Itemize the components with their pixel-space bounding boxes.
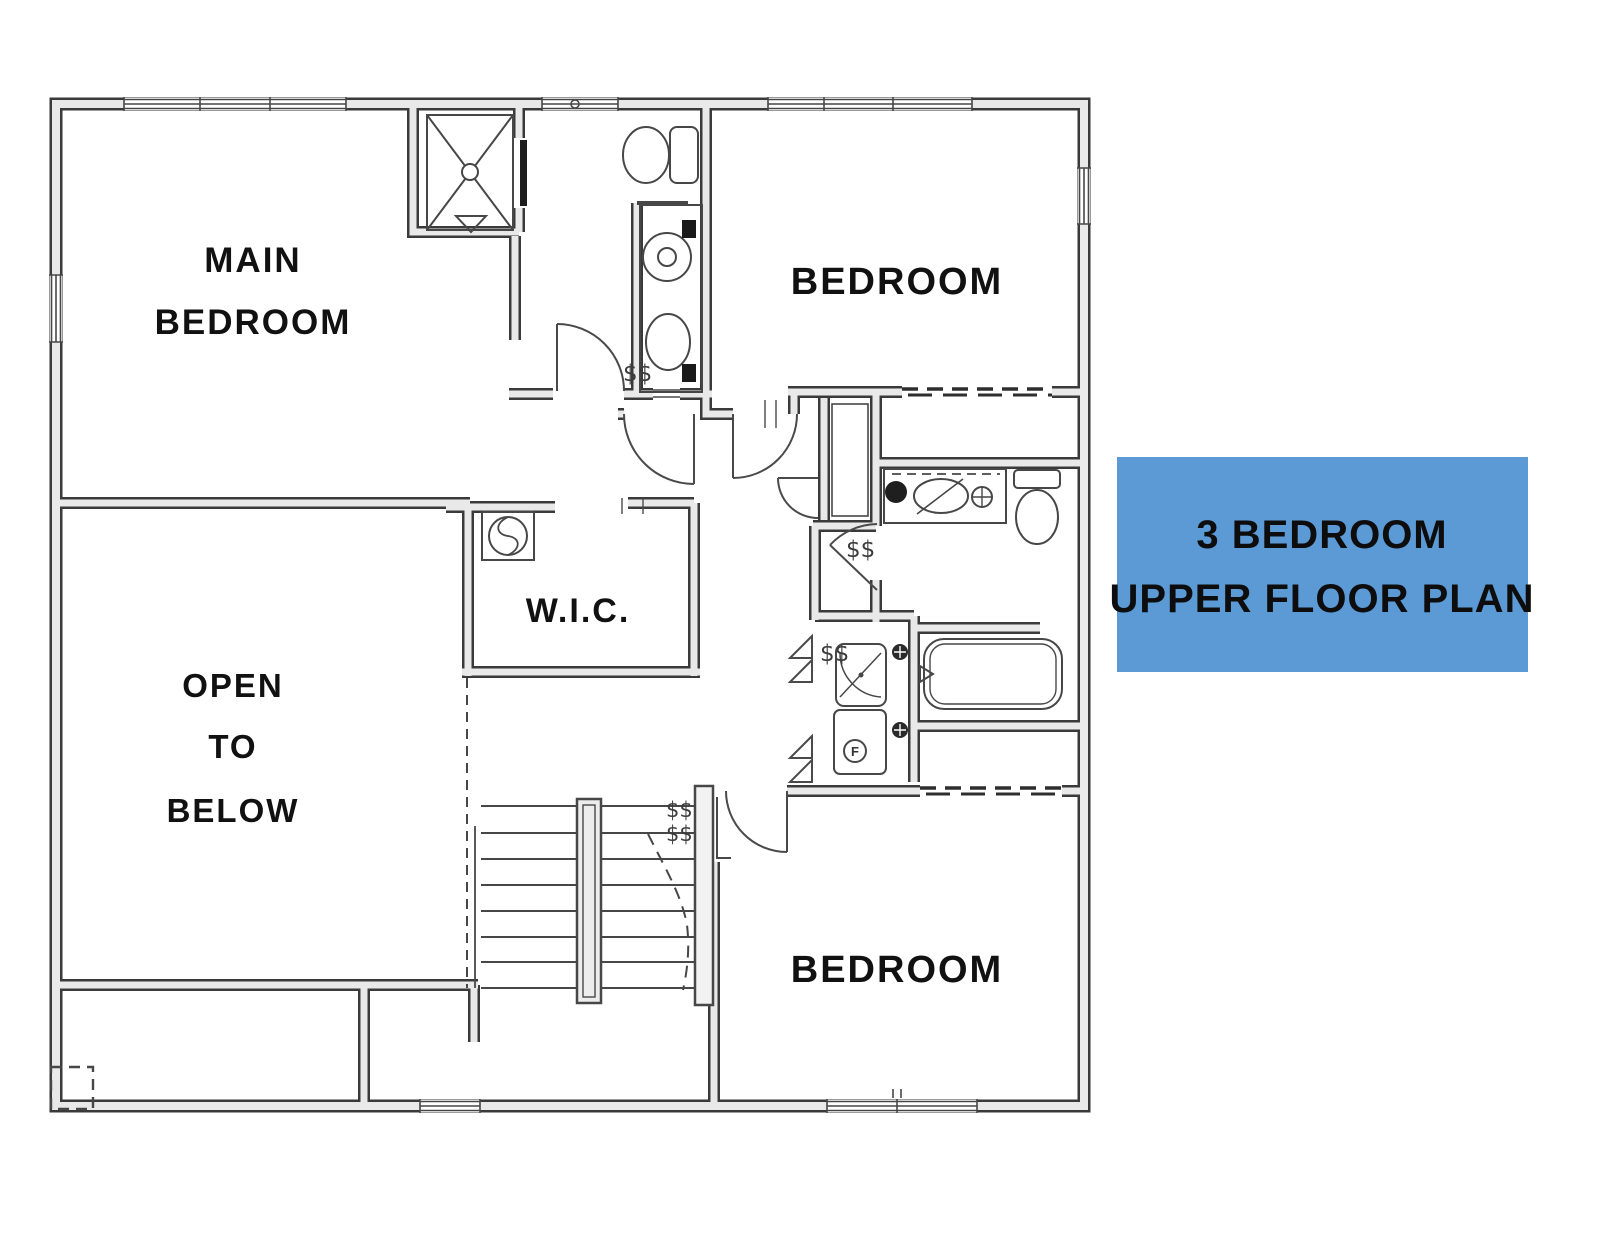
floor-plan-page: F $$ $$ $$ $$ $$ MAIN BEDROOM BEDROOM W.…: [0, 0, 1600, 1236]
main-bedroom-label-line1: MAIN: [204, 241, 301, 280]
doors: [520, 140, 1062, 852]
door-ensuite-vanity-sill: [653, 389, 680, 398]
closet-rod-lower: [920, 788, 1062, 794]
title-badge-background: [1117, 457, 1528, 672]
stair-railing-wall: [695, 786, 713, 1005]
laundry-valves: [892, 644, 908, 738]
faucet-icon: [682, 220, 696, 238]
main-bedroom-label-line2: BEDROOM: [155, 303, 352, 342]
bedroom-upper-label: BEDROOM: [791, 261, 1003, 303]
door-vestibule: [733, 400, 797, 478]
window-main-bedroom-left: [49, 275, 63, 342]
window-landing-bottom: [420, 1099, 480, 1113]
shower-stall: [427, 115, 513, 232]
open-to-below-label-line3: BELOW: [167, 792, 300, 829]
bathroom-vanity: [884, 469, 1006, 523]
dryer-label: F: [851, 744, 859, 759]
bathtub: [920, 639, 1062, 709]
faucet-icon: [682, 364, 696, 382]
door-main-bedroom: [557, 324, 624, 391]
window-bedroom-lower-bottom: [827, 1089, 977, 1113]
open-to-below-label-line1: OPEN: [182, 667, 284, 704]
dryer: F: [834, 710, 886, 774]
window-hall-top: [542, 97, 618, 111]
bathroom-toilet: [1014, 470, 1060, 544]
title-line2: UPPER FLOOR PLAN: [1110, 577, 1535, 621]
wic-fan-symbol: [482, 512, 534, 560]
switch-mark: $$: [846, 537, 875, 563]
door-stair-hall: [624, 414, 694, 484]
door-bedroom-lower: [726, 791, 787, 852]
bypass-doors-closet-upper: [902, 389, 1052, 395]
switch-mark: $$: [820, 641, 849, 667]
window-bedroom-upper-right: [1077, 168, 1091, 224]
open-to-below-label-line2: TO: [208, 728, 257, 765]
vanity-sink-1: [643, 233, 691, 281]
shower-door: [520, 140, 527, 206]
title-line1: 3 BEDROOM: [1196, 513, 1447, 557]
window-bedroom-upper-top: [768, 97, 972, 111]
window-main-bedroom-top: [124, 97, 346, 111]
switch-mark: $$: [623, 361, 652, 387]
vanity-sink-2: [646, 314, 690, 370]
switch-mark: $$: [666, 822, 693, 846]
wic-label: W.I.C.: [526, 592, 631, 630]
switch-mark: $$: [666, 798, 693, 822]
door-linen-closet: [778, 478, 818, 518]
floor-plan-drawing: F $$ $$ $$ $$ $$ MAIN BEDROOM BEDROOM W.…: [0, 0, 1600, 1236]
title-badge: 3 BEDROOM UPPER FLOOR PLAN: [1110, 457, 1535, 672]
ensuite-toilet: [623, 127, 698, 183]
bedroom-lower-label: BEDROOM: [791, 949, 1003, 991]
stair-handrail: [577, 799, 601, 1003]
bifold-doors-laundry: [790, 636, 812, 782]
tub-faucet-icon: [920, 666, 933, 682]
faucet-icon: [885, 481, 907, 503]
mechanical-chase: [832, 404, 868, 516]
